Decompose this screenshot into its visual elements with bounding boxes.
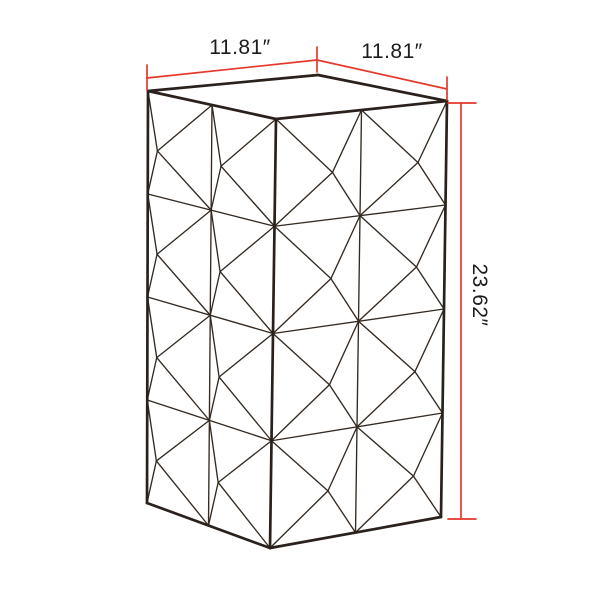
height-dimension-label: 23.62″: [467, 264, 491, 327]
product-dimension-diagram: 11.81″ 11.81″ 23.62″: [0, 0, 600, 600]
box-drawing: [0, 0, 600, 600]
width-left-dimension-label: 11.81″: [209, 36, 270, 60]
width-right-dimension-label: 11.81″: [361, 40, 422, 64]
